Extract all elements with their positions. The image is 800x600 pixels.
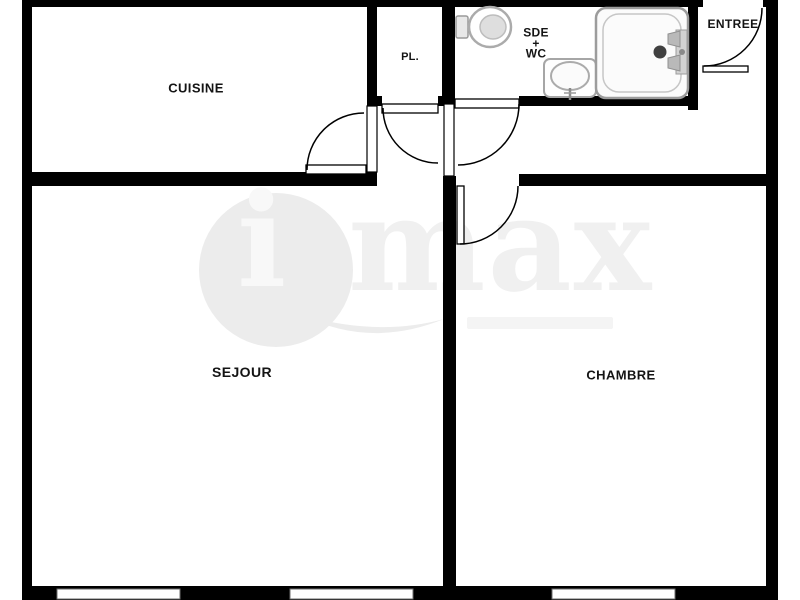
toilet-icon (456, 7, 511, 47)
door-leaf-cuisine (306, 165, 366, 174)
room-label-sejour: SEJOUR (212, 364, 272, 380)
room-label-pl: PL. (401, 51, 419, 63)
shower-knob-icon (668, 55, 680, 71)
room-label-cuisine: CUISINE (168, 81, 224, 96)
window-sejour-right (290, 589, 413, 599)
wall-pl-sde (442, 6, 455, 96)
door-swing-pl (383, 108, 438, 163)
floor-plan: i max (0, 0, 800, 600)
wall-right (766, 0, 778, 600)
room-label-sde-wc: SDE + WC (523, 27, 549, 59)
shower-drain-icon (654, 46, 667, 59)
wall-main-right (519, 174, 766, 186)
door-leaf-pl (382, 104, 438, 113)
jamb-cuisine-door (367, 106, 377, 172)
windows (57, 589, 675, 599)
room-label-chambre: CHAMBRE (586, 368, 655, 383)
door-leaf-chambre (457, 186, 464, 244)
door-jambs (367, 104, 454, 176)
wall-corridor-top-a (377, 96, 382, 106)
room-label-sde-line3: WC (523, 48, 549, 59)
wall-sde-entree (688, 6, 698, 110)
floor-plan-structure (0, 0, 800, 600)
door-swing-cuisine (307, 113, 364, 170)
wall-sejour-chambre (443, 176, 456, 588)
washbasin-icon (544, 59, 596, 100)
wall-top-left-segment (22, 0, 703, 7)
door-leaf-entree (703, 66, 748, 72)
room-label-entree: ENTREE (707, 17, 758, 31)
door-swing-chambre (460, 186, 518, 244)
shower-tray-icon (596, 8, 688, 98)
door-leaf-sde (455, 99, 519, 108)
window-chambre (552, 589, 675, 599)
wall-cuisine-pl (367, 6, 377, 106)
door-swing-sde (458, 104, 519, 165)
fixtures (456, 7, 688, 100)
wall-top-right-segment (763, 0, 778, 7)
wall-left (22, 0, 32, 600)
shower-knob-icon (668, 31, 680, 47)
window-sejour-left (57, 589, 180, 599)
jamb-corridor-post (444, 104, 454, 176)
